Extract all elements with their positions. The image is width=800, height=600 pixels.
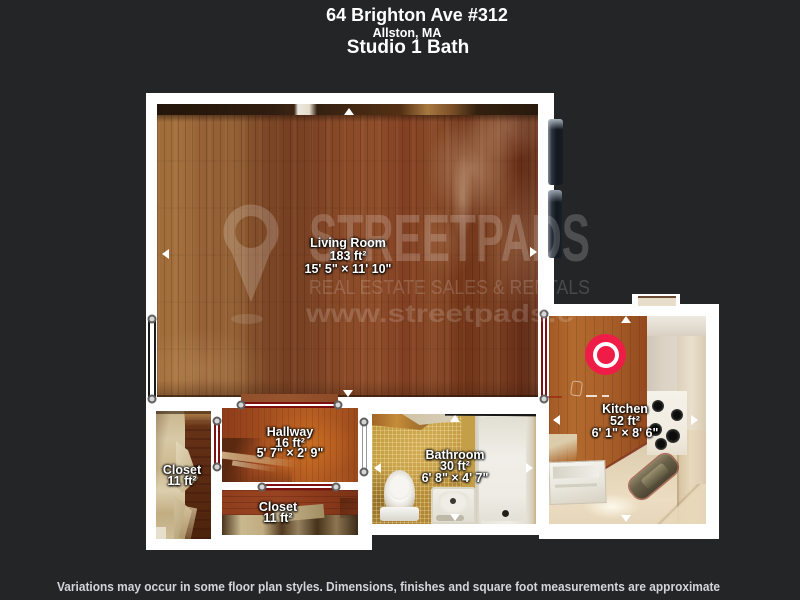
- svg-text:STREETPADS: STREETPADS: [309, 201, 590, 276]
- svg-text:REAL ESTATE SALES & RENTALS: REAL ESTATE SALES & RENTALS: [309, 277, 590, 299]
- svg-text:www.streetpads.c: www.streetpads.c: [305, 300, 574, 328]
